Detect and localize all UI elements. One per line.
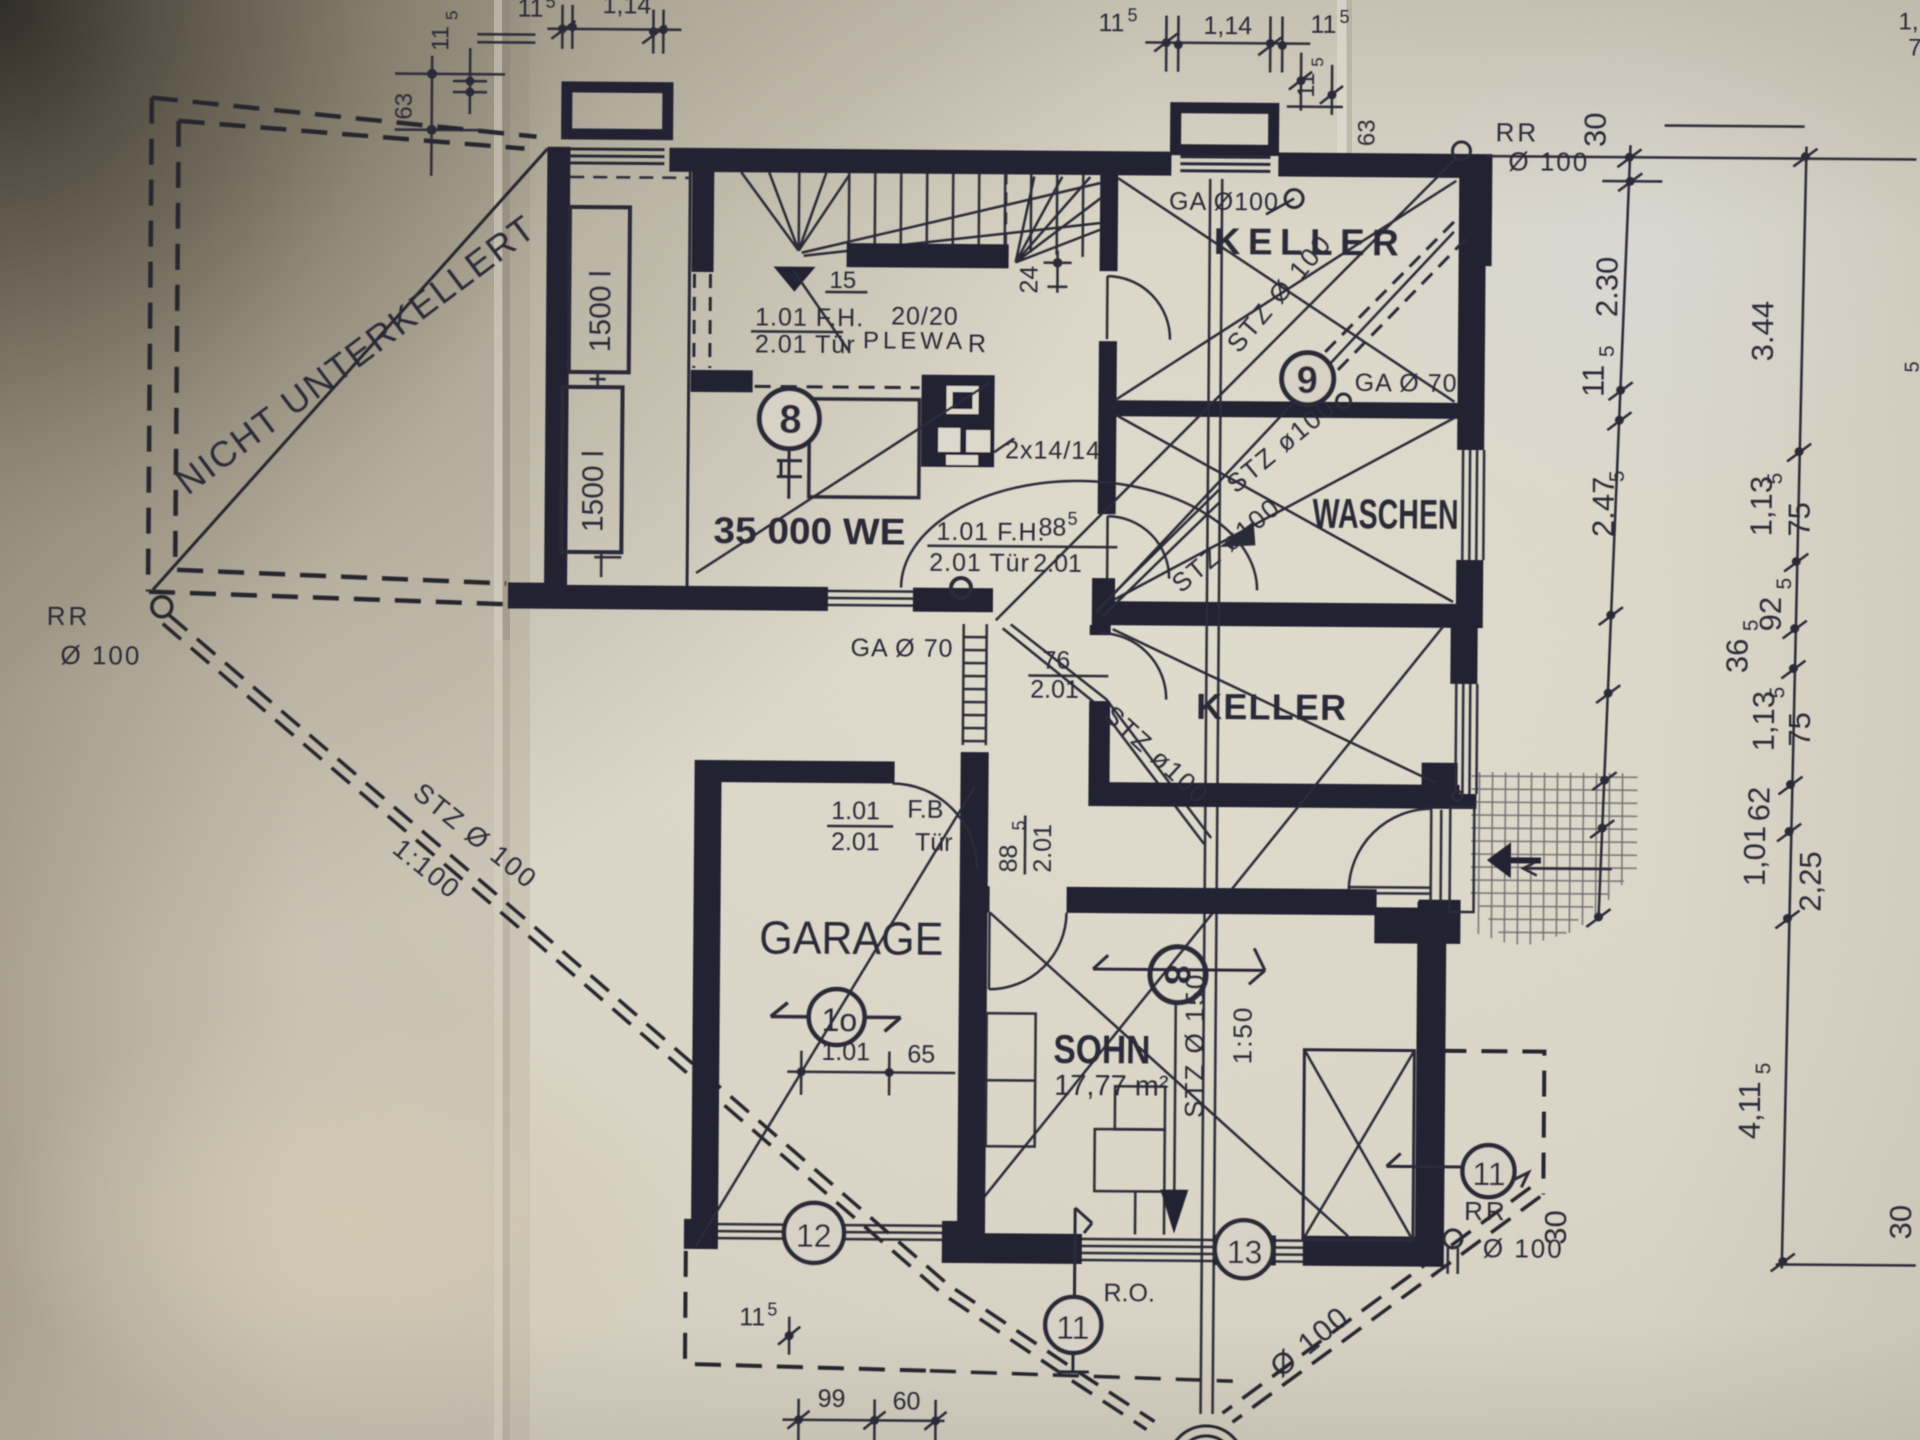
svg-text:7: 7 [1908, 34, 1920, 61]
svg-text:88: 88 [1038, 514, 1066, 542]
svg-text:11: 11 [1056, 1310, 1090, 1346]
svg-text:9: 9 [1297, 360, 1318, 402]
svg-text:99: 99 [818, 1385, 846, 1413]
svg-text:1.01 F.H.: 1.01 F.H. [755, 303, 864, 332]
svg-text:1,01: 1,01 [1737, 826, 1772, 887]
svg-text:5: 5 [1752, 1063, 1775, 1075]
svg-text:SOHN: SOHN [1053, 1028, 1150, 1073]
svg-text:Tür: Tür [915, 829, 953, 857]
svg-text:PLEWA: PLEWA [863, 327, 966, 355]
svg-text:60: 60 [893, 1387, 921, 1415]
svg-text:11: 11 [1098, 9, 1124, 37]
svg-text:5: 5 [1773, 578, 1796, 590]
svg-text:11: 11 [1472, 1156, 1506, 1192]
svg-text:RR: RR [1496, 117, 1540, 147]
svg-text:1o: 1o [821, 1002, 857, 1038]
svg-text:5: 5 [1902, 361, 1920, 372]
svg-text:Ø 100: Ø 100 [60, 640, 141, 671]
svg-text:2.01: 2.01 [1029, 824, 1057, 873]
svg-text:65: 65 [907, 1041, 935, 1069]
svg-text:3.44: 3.44 [1745, 301, 1780, 362]
svg-text:5: 5 [1068, 509, 1078, 529]
svg-text:76: 76 [1042, 647, 1070, 675]
svg-text:1:50: 1:50 [1227, 1006, 1257, 1065]
svg-text:WASCHEN: WASCHEN [1312, 490, 1458, 538]
svg-text:11: 11 [517, 0, 543, 23]
svg-text:4,11: 4,11 [1732, 1081, 1767, 1139]
svg-text:2x14/14: 2x14/14 [1005, 436, 1101, 465]
svg-text:1500 l: 1500 l [576, 450, 610, 532]
svg-text:GARAGE: GARAGE [759, 911, 943, 964]
svg-text:5: 5 [1764, 473, 1787, 485]
svg-text:2.01: 2.01 [1030, 676, 1079, 704]
svg-text:5: 5 [1127, 5, 1137, 25]
svg-text:88: 88 [995, 844, 1023, 872]
svg-text:2,25: 2,25 [1793, 851, 1828, 912]
svg-text:63: 63 [391, 93, 418, 120]
svg-text:RR: RR [47, 601, 91, 631]
svg-text:STZ Ø 150: STZ Ø 150 [1179, 973, 1210, 1118]
svg-text:8: 8 [779, 398, 802, 442]
svg-text:5: 5 [1766, 687, 1789, 699]
svg-text:1,13: 1,13 [1746, 691, 1781, 752]
svg-text:11: 11 [739, 1303, 765, 1331]
svg-text:1,14: 1,14 [1203, 12, 1252, 40]
svg-text:75: 75 [1781, 502, 1816, 537]
svg-text:GA Ø 70: GA Ø 70 [1355, 369, 1458, 398]
svg-text:2.47: 2.47 [1585, 477, 1620, 538]
svg-text:11: 11 [1310, 11, 1336, 39]
svg-text:5: 5 [1339, 7, 1349, 27]
svg-text:13: 13 [1227, 1234, 1263, 1270]
svg-text:11: 11 [1293, 73, 1320, 98]
svg-text:F.B: F.B [907, 796, 943, 824]
svg-text:1.01: 1.01 [831, 797, 880, 825]
svg-text:11: 11 [427, 26, 454, 51]
svg-text:KELLER: KELLER [1196, 686, 1346, 728]
svg-text:11: 11 [1576, 365, 1611, 397]
svg-text:36: 36 [1719, 638, 1754, 673]
svg-text:30: 30 [1578, 112, 1613, 147]
svg-text:5: 5 [1740, 619, 1763, 631]
svg-text:2.01: 2.01 [831, 828, 880, 856]
svg-text:R.O.: R.O. [1103, 1279, 1155, 1307]
svg-text:5: 5 [1596, 345, 1619, 357]
svg-text:1.01: 1.01 [821, 1038, 870, 1066]
svg-text:1500 l: 1500 l [584, 270, 618, 352]
svg-text:Ø 100: Ø 100 [1508, 146, 1589, 177]
svg-text:62: 62 [1741, 787, 1776, 822]
svg-text:5: 5 [546, 0, 556, 12]
svg-text:5: 5 [1308, 57, 1327, 67]
svg-text:35 000 WE: 35 000 WE [713, 510, 905, 553]
svg-text:2.01 Tür: 2.01 Tür [929, 549, 1030, 578]
svg-text:15: 15 [829, 267, 856, 294]
svg-text:1,14: 1,14 [602, 0, 651, 20]
svg-text:5: 5 [1606, 470, 1629, 482]
svg-text:GA Ø100: GA Ø100 [1169, 188, 1279, 217]
svg-text:63: 63 [1354, 119, 1381, 146]
svg-text:2.01 Tür: 2.01 Tür [755, 330, 856, 359]
svg-text:5: 5 [442, 10, 461, 20]
svg-text:30: 30 [1883, 1205, 1918, 1240]
svg-text:GA Ø 70: GA Ø 70 [850, 634, 953, 663]
svg-text:5: 5 [767, 1300, 777, 1320]
svg-text:24: 24 [1015, 266, 1043, 294]
svg-text:12: 12 [796, 1218, 832, 1254]
svg-text:RR: RR [1464, 1196, 1508, 1226]
svg-text:30: 30 [1538, 1210, 1573, 1245]
svg-text:R: R [968, 330, 986, 358]
svg-text:1.01 F.H.: 1.01 F.H. [936, 518, 1045, 547]
svg-text:1,: 1, [1898, 8, 1918, 35]
svg-text:2.30: 2.30 [1589, 257, 1624, 318]
svg-text:75: 75 [1782, 712, 1817, 747]
